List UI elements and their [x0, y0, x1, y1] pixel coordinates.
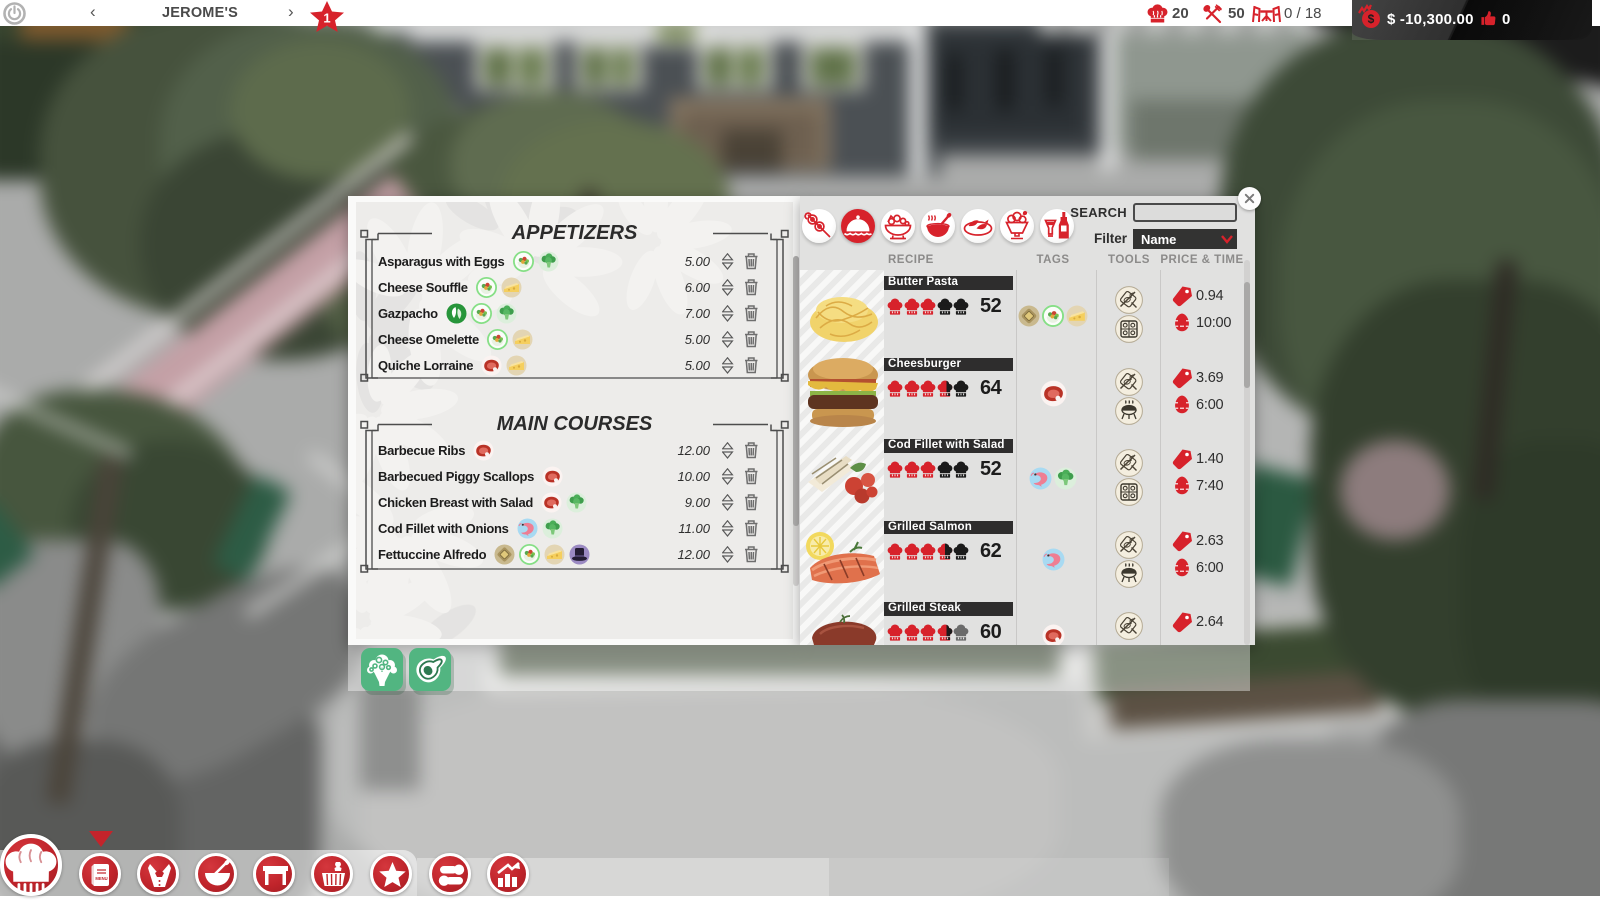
- svg-text:$: $: [1368, 12, 1375, 26]
- svg-text:MENU: MENU: [95, 876, 107, 881]
- svg-text:1: 1: [323, 10, 330, 25]
